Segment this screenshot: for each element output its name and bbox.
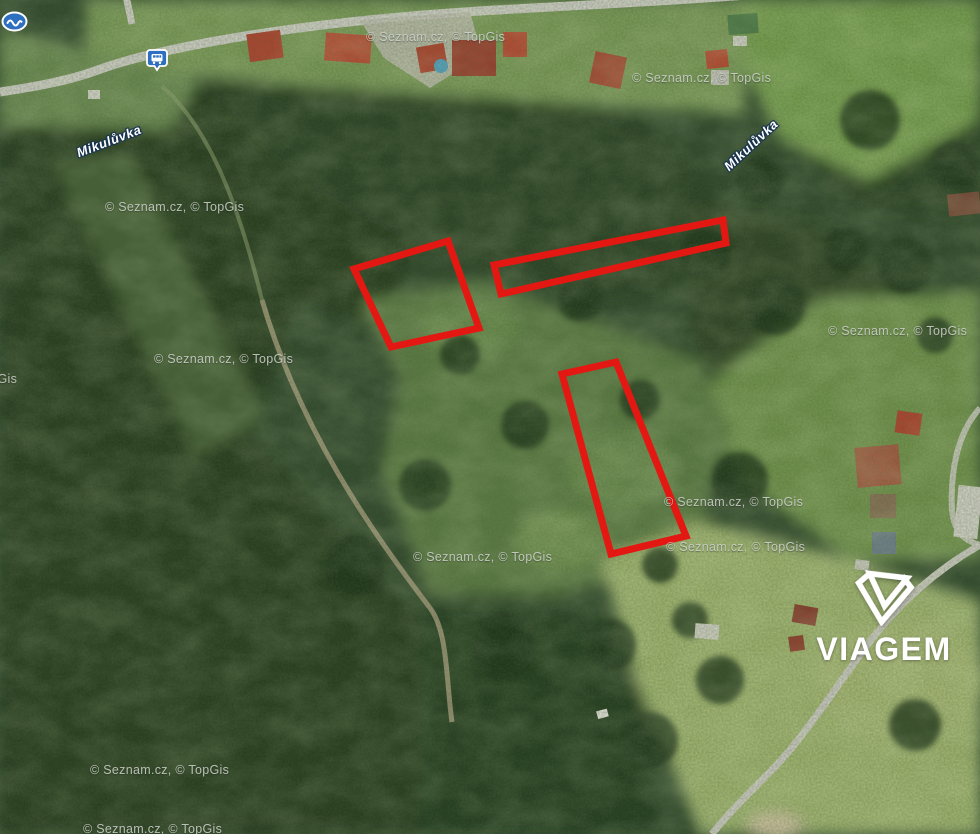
viagem-wordmark: VIAGEM (810, 631, 958, 668)
meadow-texture (0, 0, 980, 834)
viagem-gem-icon (850, 566, 918, 628)
transit-poi-icon[interactable] (1, 11, 28, 38)
bus-stop-icon[interactable] (146, 49, 168, 78)
map-canvas[interactable]: © Seznam.cz, © TopGis© Seznam.cz, © TopG… (0, 0, 980, 834)
satellite-imagery (0, 0, 980, 834)
viagem-logo: VIAGEM (810, 568, 958, 668)
